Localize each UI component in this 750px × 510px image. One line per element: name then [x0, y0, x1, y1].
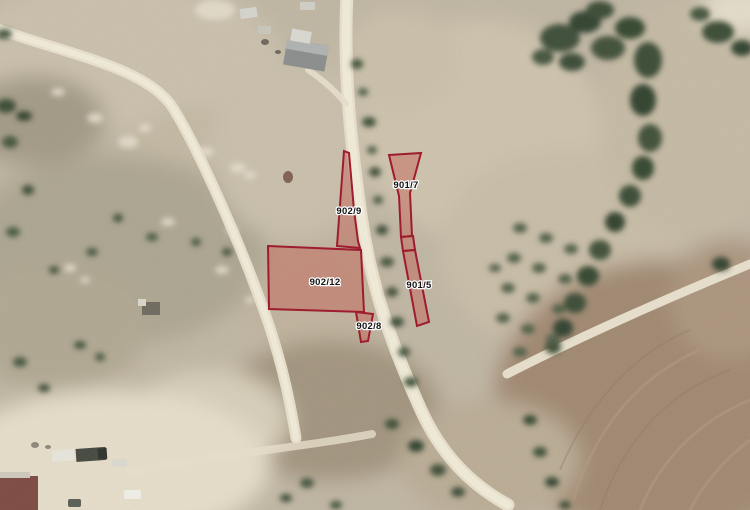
aerial-map-svg: 902/9 901/7 902/12 901/5 902/8 — [0, 0, 750, 510]
parcel-label-902-12: 902/12 — [310, 277, 341, 288]
aerial-map-canvas[interactable]: 902/9 901/7 902/12 901/5 902/8 — [0, 0, 750, 510]
parcel-label-902-8: 902/8 — [356, 321, 381, 332]
parcel-label-901-7: 901/7 — [393, 180, 418, 191]
photo-grain-overlay — [0, 0, 750, 510]
parcel-label-902-9: 902/9 — [336, 206, 361, 217]
parcel-label-901-5: 901/5 — [406, 280, 432, 291]
parcel-901-unlabeled[interactable] — [401, 236, 415, 251]
